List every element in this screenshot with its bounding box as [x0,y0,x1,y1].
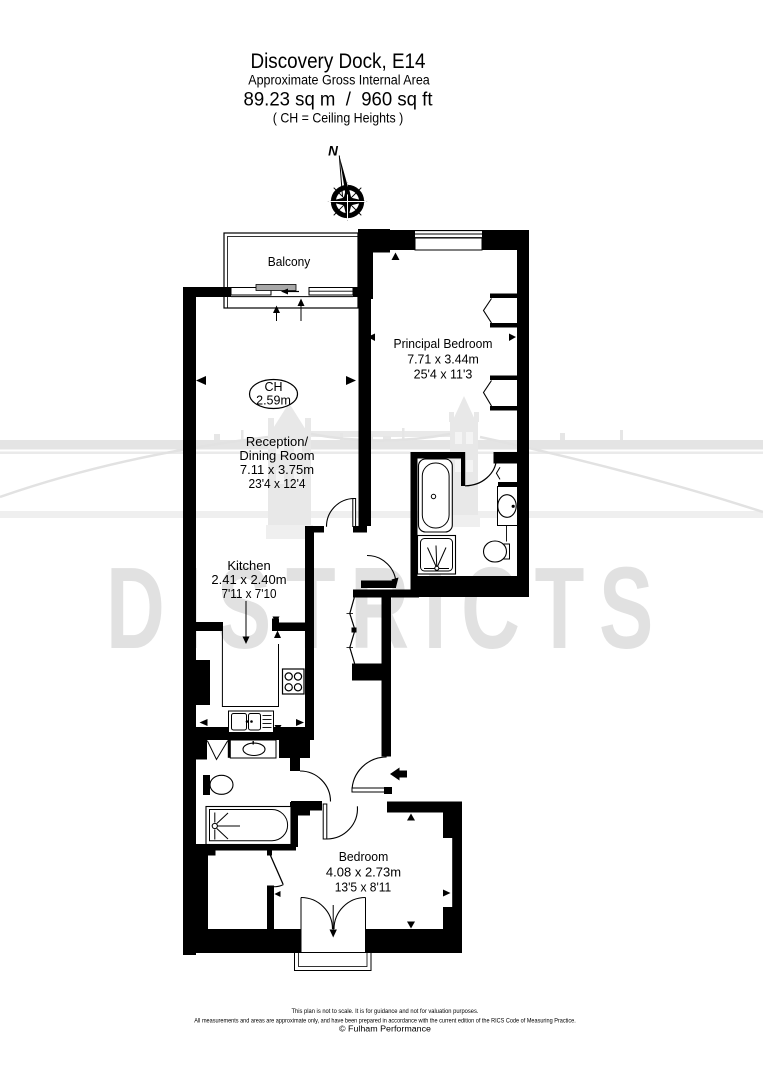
svg-text:4.08 x 2.73m: 4.08 x 2.73m [326,865,401,880]
svg-text:Bedroom: Bedroom [339,849,389,864]
svg-text:23'4 x 12'4: 23'4 x 12'4 [249,476,306,491]
svg-text:89.23 sq m / 960 sq ft: 89.23 sq m / 960 sq ft [244,89,433,111]
svg-text:7.11 x 3.75m: 7.11 x 3.75m [240,462,314,477]
svg-text:Balcony: Balcony [268,254,311,269]
svg-text:Discovery Dock, E14: Discovery Dock, E14 [251,49,426,73]
svg-text:Dining Room: Dining Room [239,448,314,463]
svg-text:© Fulham Performance: © Fulham Performance [339,1025,432,1034]
svg-text:N: N [328,144,338,159]
svg-text:Kitchen: Kitchen [227,558,270,573]
svg-text:Reception/: Reception/ [246,434,309,449]
svg-text:25'4 x 11'3: 25'4 x 11'3 [414,367,473,382]
svg-text:13'5 x 8'11: 13'5 x 8'11 [335,880,392,895]
svg-text:CH: CH [264,380,282,394]
svg-text:7.71 x 3.44m: 7.71 x 3.44m [407,352,479,367]
svg-text:Approximate Gross Internal Are: Approximate Gross Internal Area [248,73,430,89]
svg-text:2.41 x 2.40m: 2.41 x 2.40m [211,572,286,587]
svg-text:All measurements and areas are: All measurements and areas are approxima… [194,1018,576,1025]
svg-text:2.59m: 2.59m [256,394,291,408]
svg-text:7'11 x 7'10: 7'11 x 7'10 [222,586,277,601]
svg-text:( CH = Ceiling Heights ): ( CH = Ceiling Heights ) [273,111,404,126]
svg-text:Principal Bedroom: Principal Bedroom [394,336,493,351]
svg-text:This plan is not to scale. It: This plan is not to scale. It is for gui… [292,1008,479,1015]
